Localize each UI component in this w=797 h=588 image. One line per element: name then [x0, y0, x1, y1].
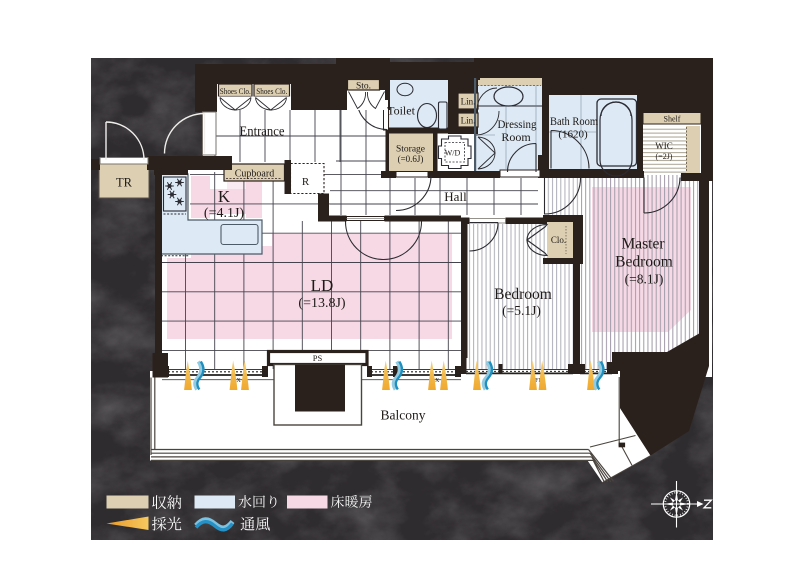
- svg-text:Cupboard: Cupboard: [235, 169, 274, 180]
- svg-text:WIC: WIC: [655, 141, 673, 151]
- svg-text:Sto.: Sto.: [356, 82, 371, 92]
- svg-text:R: R: [302, 176, 310, 188]
- svg-text:LD: LD: [311, 276, 334, 295]
- svg-text:Lin.: Lin.: [461, 97, 476, 107]
- svg-text:(=0.6J): (=0.6J): [398, 154, 424, 164]
- svg-text:Dressing: Dressing: [498, 117, 537, 131]
- svg-text:(1620): (1620): [558, 129, 588, 141]
- svg-text:(=8.1J): (=8.1J): [625, 272, 664, 287]
- svg-text:Balcony: Balcony: [381, 408, 426, 423]
- svg-text:K: K: [218, 187, 231, 206]
- svg-text:Entrance: Entrance: [240, 125, 285, 140]
- svg-text:Bedroom: Bedroom: [494, 286, 552, 303]
- svg-text:TR: TR: [116, 176, 133, 190]
- svg-text:Bedroom: Bedroom: [615, 254, 673, 271]
- svg-text:(=4.1J): (=4.1J): [204, 206, 245, 221]
- svg-text:Room: Room: [501, 130, 531, 144]
- svg-text:Shelf: Shelf: [664, 115, 681, 124]
- svg-text:Clo.: Clo.: [551, 235, 566, 245]
- svg-text:Storage: Storage: [396, 145, 425, 155]
- svg-text:Lin.: Lin.: [461, 116, 476, 126]
- svg-text:PS: PS: [313, 353, 323, 363]
- svg-text:(=13.8J): (=13.8J): [298, 296, 346, 311]
- svg-text:Shoes Clo.: Shoes Clo.: [220, 86, 251, 96]
- svg-text:Shoes Clo.: Shoes Clo.: [256, 86, 287, 96]
- svg-text:W/D: W/D: [445, 149, 461, 158]
- svg-text:(=5.1J): (=5.1J): [502, 303, 541, 318]
- svg-text:Master: Master: [621, 236, 665, 253]
- svg-text:(=2J): (=2J): [656, 152, 673, 161]
- svg-text:Bath Room: Bath Room: [550, 114, 599, 128]
- svg-text:Toilet: Toilet: [387, 104, 415, 118]
- svg-text:Hall: Hall: [444, 189, 467, 204]
